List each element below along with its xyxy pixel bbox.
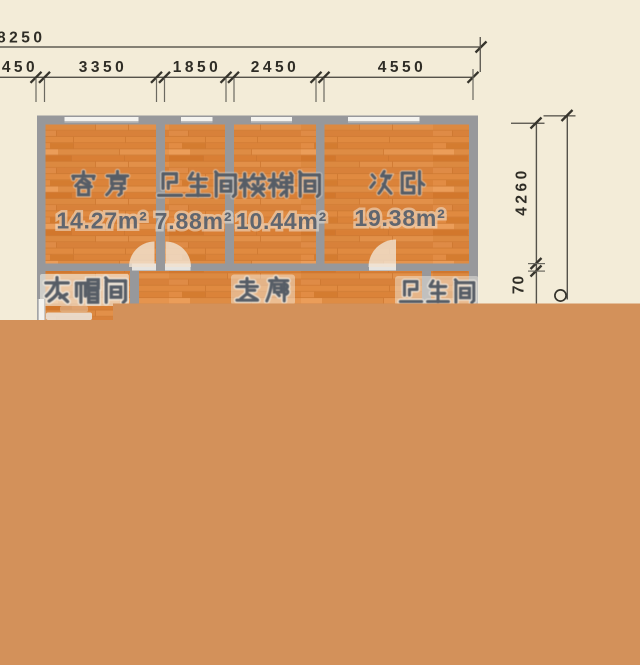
svg-text:19.38m²: 19.38m²: [354, 205, 445, 231]
svg-text:450: 450: [2, 59, 38, 76]
svg-text:4550: 4550: [378, 59, 426, 76]
svg-text:14.27m²: 14.27m²: [56, 208, 147, 234]
svg-text:10.44m²: 10.44m²: [236, 208, 327, 234]
svg-text:4260: 4260: [514, 167, 531, 215]
svg-text:3350: 3350: [79, 59, 127, 76]
svg-text:7.88m²: 7.88m²: [155, 208, 233, 234]
svg-text:70: 70: [511, 275, 528, 294]
svg-text:8250: 8250: [0, 30, 45, 47]
svg-text:1850: 1850: [173, 59, 221, 76]
svg-text:2450: 2450: [251, 59, 299, 76]
